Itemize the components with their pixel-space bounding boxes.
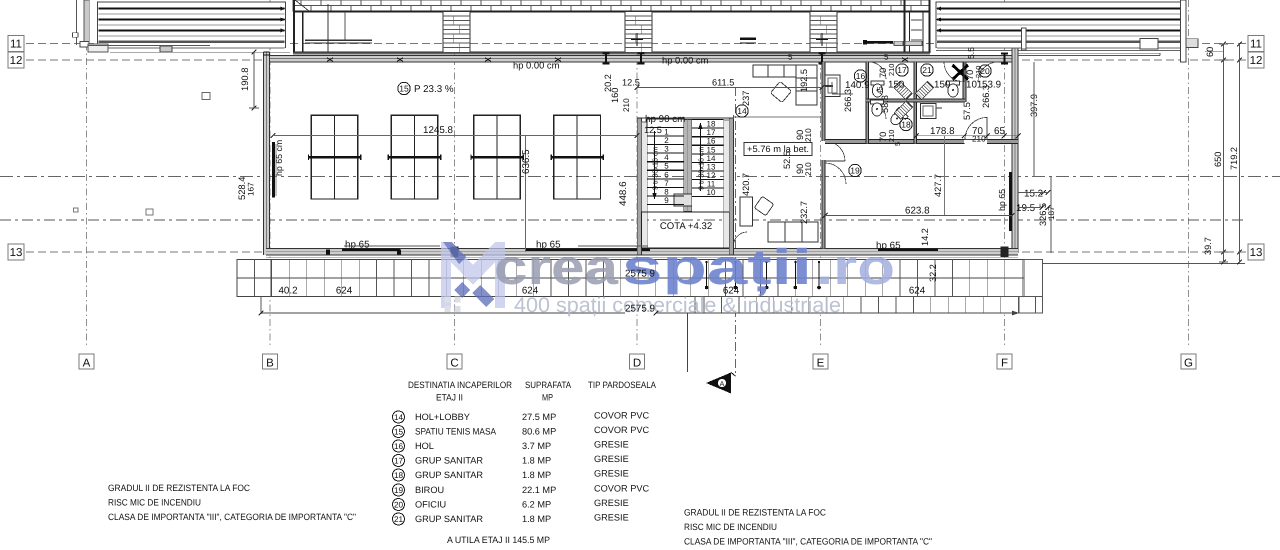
svg-text:624: 624 [336, 286, 353, 297]
svg-text:GRUP SANITAR: GRUP SANITAR [415, 470, 483, 480]
svg-text:E: E [817, 358, 825, 370]
svg-text:5: 5 [893, 142, 902, 146]
svg-text:101: 101 [966, 80, 982, 91]
svg-text:45: 45 [877, 86, 884, 94]
svg-text:18: 18 [901, 120, 911, 130]
svg-text:10: 10 [707, 188, 716, 197]
svg-text:636.5: 636.5 [521, 149, 532, 174]
svg-text:GRADUL II DE REZISTENTA LA FOC: GRADUL II DE REZISTENTA LA FOC [108, 483, 250, 493]
svg-text:52.5: 52.5 [782, 151, 792, 169]
svg-text:CLASA DE IMPORTANTA "III", CAT: CLASA DE IMPORTANTA "III", CATEGORIA DE … [684, 537, 932, 547]
svg-text:448.6: 448.6 [618, 181, 629, 206]
svg-text:COVOR PVC: COVOR PVC [594, 425, 649, 435]
svg-text:1.8 MP: 1.8 MP [522, 514, 551, 524]
svg-text:DESTINATIA INCAPERILOR: DESTINATIA INCAPERILOR [408, 380, 512, 390]
svg-text:18: 18 [394, 471, 404, 480]
svg-text:16: 16 [394, 442, 404, 451]
svg-text:GRESIE: GRESIE [594, 440, 629, 450]
svg-text:80.6 MP: 80.6 MP [522, 427, 556, 437]
svg-text:C: C [450, 358, 458, 370]
svg-text:15: 15 [399, 84, 409, 94]
svg-text:232.7: 232.7 [799, 201, 809, 224]
svg-text:160: 160 [610, 88, 620, 103]
svg-text:HOL+LOBBY: HOL+LOBBY [415, 412, 470, 422]
svg-text:A: A [720, 381, 725, 388]
svg-text:hp 65 cm: hp 65 cm [274, 140, 284, 176]
svg-text:9 tr 30x16 cm: 9 tr 30x16 cm [696, 146, 705, 190]
svg-text:11: 11 [10, 39, 22, 51]
svg-text:5.5: 5.5 [966, 47, 976, 59]
svg-text:266.3: 266.3 [843, 89, 853, 112]
svg-text:A UTILA ETAJ II 145.5 MP: A UTILA ETAJ II 145.5 MP [447, 535, 550, 545]
svg-text:65: 65 [994, 126, 1005, 137]
svg-text:14.2: 14.2 [920, 228, 930, 246]
svg-text:14: 14 [394, 413, 404, 422]
svg-text:266.3: 266.3 [981, 85, 991, 108]
svg-text:57.5: 57.5 [962, 102, 972, 120]
svg-text:12: 12 [10, 55, 23, 67]
svg-text:15: 15 [394, 428, 404, 437]
svg-text:1.8 MP: 1.8 MP [522, 470, 551, 480]
svg-text:623.8: 623.8 [905, 206, 930, 217]
svg-text:GRADUL II DE REZISTENTA LA FOC: GRADUL II DE REZISTENTA LA FOC [684, 508, 826, 518]
svg-text:G: G [1184, 358, 1193, 370]
svg-text:RISC MIC DE INCENDIU: RISC MIC DE INCENDIU [684, 522, 777, 532]
svg-text:HOL: HOL [415, 441, 434, 451]
svg-text:TIP PARDOSEALA: TIP PARDOSEALA [588, 380, 657, 390]
svg-text:hp 65: hp 65 [536, 240, 561, 251]
svg-text:150: 150 [888, 80, 905, 91]
svg-text:210: 210 [622, 98, 631, 112]
svg-text:237: 237 [741, 91, 751, 106]
svg-text:COTA +4.32: COTA +4.32 [660, 221, 712, 232]
svg-text:210: 210 [887, 64, 896, 76]
svg-text:+5.76 m la bet.: +5.76 m la bet. [747, 144, 809, 154]
svg-text:BIROU: BIROU [415, 485, 444, 495]
svg-text:210: 210 [804, 162, 813, 176]
svg-text:5: 5 [884, 53, 889, 62]
svg-text:GRESIE: GRESIE [594, 454, 629, 464]
svg-text:178.8: 178.8 [930, 126, 955, 137]
svg-text:GRESIE: GRESIE [594, 469, 629, 479]
svg-text:624: 624 [723, 286, 740, 297]
svg-text:400 spații comerciale & indust: 400 spații comerciale & industriale [514, 294, 841, 317]
svg-text:2575.9: 2575.9 [625, 304, 655, 315]
svg-text:611.5: 611.5 [712, 78, 734, 88]
svg-text:17: 17 [394, 457, 404, 466]
svg-text:210: 210 [974, 66, 983, 78]
svg-text:MP: MP [542, 393, 553, 403]
svg-text:17: 17 [897, 65, 907, 75]
svg-text:GRESIE: GRESIE [594, 498, 629, 508]
svg-text:719.2: 719.2 [1229, 147, 1239, 170]
svg-text:20: 20 [394, 501, 404, 510]
svg-text:192.5: 192.5 [799, 69, 809, 92]
svg-text:27.5 MP: 27.5 MP [522, 412, 556, 422]
svg-text:150: 150 [934, 80, 951, 91]
svg-text:SUPRAFATA: SUPRAFATA [525, 380, 572, 390]
svg-text:1245.8: 1245.8 [423, 125, 454, 136]
svg-text:OFICIU: OFICIU [415, 500, 446, 510]
svg-text:P 23.3 %: P 23.3 % [414, 84, 454, 95]
svg-text:9: 9 [664, 196, 669, 205]
svg-text:13: 13 [10, 247, 23, 259]
svg-text:16: 16 [856, 71, 866, 81]
svg-text:GRUP SANITAR: GRUP SANITAR [415, 514, 483, 524]
svg-text:B: B [266, 358, 274, 370]
svg-text:427.7: 427.7 [933, 174, 943, 197]
svg-text:3.7 MP: 3.7 MP [522, 441, 551, 451]
svg-text:650: 650 [1213, 152, 1223, 167]
svg-text:624: 624 [909, 286, 926, 297]
svg-text:12: 12 [1250, 55, 1263, 67]
svg-text:167: 167 [247, 182, 256, 196]
svg-text:58.8: 58.8 [880, 95, 890, 113]
svg-text:21: 21 [922, 65, 932, 75]
svg-text:SPATIU TENIS MASA: SPATIU TENIS MASA [415, 427, 497, 437]
svg-text:210: 210 [972, 135, 986, 144]
svg-text:hp 65: hp 65 [876, 240, 901, 251]
svg-text:210: 210 [887, 130, 896, 142]
svg-text:14: 14 [737, 106, 747, 116]
svg-text:1.8 MP: 1.8 MP [522, 456, 551, 466]
svg-text:GRESIE: GRESIE [594, 513, 629, 523]
svg-text:12.5: 12.5 [622, 78, 640, 88]
svg-text:21: 21 [394, 515, 404, 524]
svg-text:19: 19 [850, 166, 860, 176]
svg-text:A: A [83, 358, 91, 370]
svg-text:RISC MIC DE INCENDIU: RISC MIC DE INCENDIU [108, 498, 201, 508]
svg-text:15.2: 15.2 [1024, 189, 1043, 200]
svg-text:hp 0.00 cm: hp 0.00 cm [513, 60, 560, 71]
svg-text:ETAJ II: ETAJ II [436, 393, 463, 403]
svg-text:6.2 MP: 6.2 MP [522, 500, 551, 510]
svg-text:187: 187 [1047, 206, 1056, 220]
svg-text:22.1 MP: 22.1 MP [522, 485, 556, 495]
svg-text:19: 19 [394, 486, 404, 495]
svg-text:624: 624 [522, 286, 539, 297]
svg-text:hp 0.00 cm: hp 0.00 cm [662, 55, 709, 66]
svg-text:13: 13 [1250, 247, 1263, 259]
svg-text:528.4: 528.4 [236, 177, 247, 200]
svg-text:39.7: 39.7 [1203, 237, 1213, 255]
svg-text:hp 65: hp 65 [345, 240, 370, 251]
svg-text:32.2: 32.2 [928, 264, 938, 282]
svg-text:2575.9: 2575.9 [625, 269, 655, 280]
svg-text:spații: spații [622, 239, 812, 296]
svg-text:hp 65: hp 65 [997, 189, 1007, 211]
svg-text:210: 210 [804, 128, 813, 142]
svg-text:420.7: 420.7 [741, 173, 751, 196]
svg-text:CLASA DE IMPORTANTA "III", CAT: CLASA DE IMPORTANTA "III", CATEGORIA DE … [108, 512, 356, 522]
svg-text:5: 5 [788, 53, 793, 62]
svg-text:COVOR PVC: COVOR PVC [594, 484, 649, 494]
svg-text:GRUP SANITAR: GRUP SANITAR [415, 456, 483, 466]
svg-text:F: F [1001, 358, 1008, 370]
svg-text:190.8: 190.8 [239, 68, 250, 91]
svg-text:11: 11 [1250, 39, 1262, 51]
svg-text:9 tr 30x16 cm: 9 tr 30x16 cm [651, 146, 660, 190]
svg-text:40.2: 40.2 [278, 286, 297, 297]
svg-text:19.5: 19.5 [1016, 203, 1036, 214]
svg-text:COVOR PVC: COVOR PVC [594, 411, 649, 421]
svg-text:D: D [633, 358, 641, 370]
